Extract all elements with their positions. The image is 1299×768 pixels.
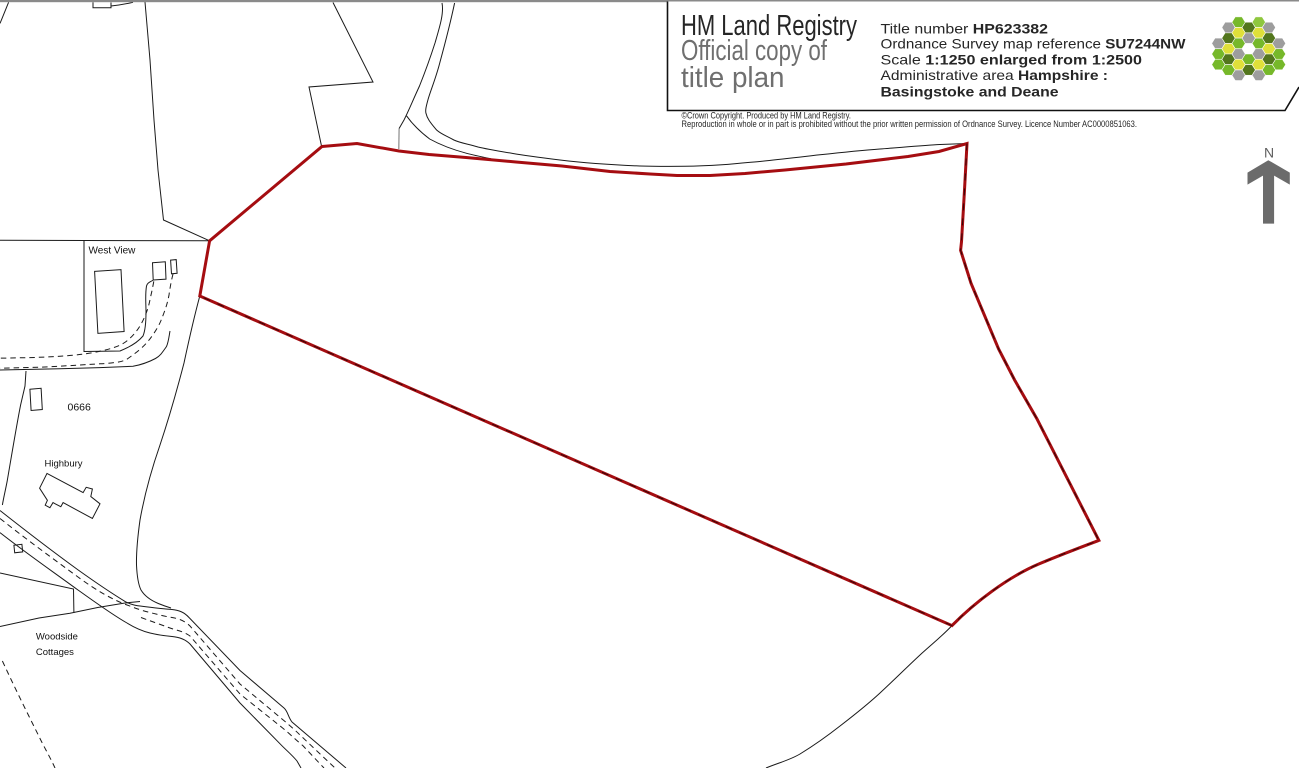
svg-text:title plan: title plan: [681, 62, 785, 94]
svg-text:Scale 1:1250 enlarged from 1:2: Scale 1:1250 enlarged from 1:2500: [881, 51, 1143, 67]
svg-text:0666: 0666: [68, 402, 92, 414]
svg-text:Basingstoke and Deane: Basingstoke and Deane: [881, 83, 1059, 99]
svg-text:Cottages: Cottages: [36, 647, 74, 658]
svg-text:N: N: [1264, 144, 1274, 160]
svg-text:Reproduction in whole or in pa: Reproduction in whole or in part is proh…: [682, 119, 1138, 129]
svg-text:West View: West View: [89, 246, 137, 257]
svg-text:Ordnance Survey map reference: Ordnance Survey map reference SU7244NW: [881, 36, 1187, 52]
svg-text:Administrative area Hampshire: Administrative area Hampshire :: [881, 67, 1109, 83]
svg-text:Woodside: Woodside: [36, 632, 78, 643]
svg-text:Highbury: Highbury: [45, 459, 83, 470]
svg-text:Title number HP623382: Title number HP623382: [881, 21, 1049, 37]
